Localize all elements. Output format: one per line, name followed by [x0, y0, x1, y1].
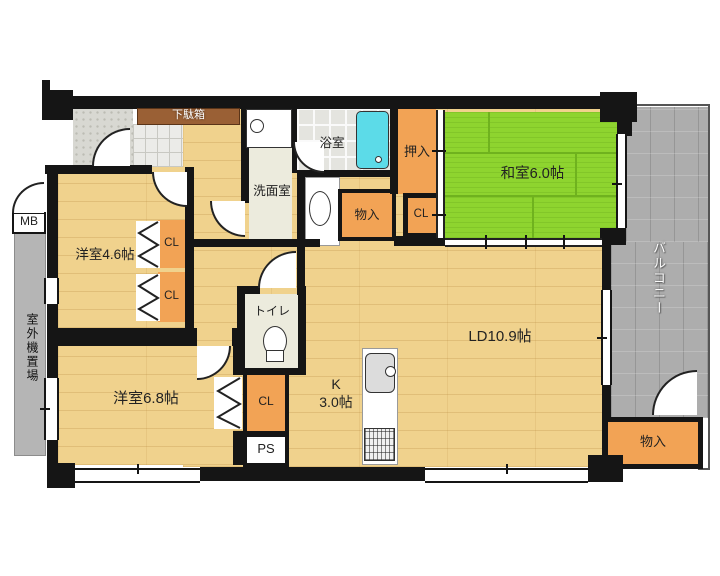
wall-block: [588, 455, 623, 482]
living-dining-label: LD10.9帖: [455, 328, 545, 345]
balcony-railing: [708, 104, 710, 470]
sliding-door-tick: [485, 235, 487, 249]
kitchen-label: K: [326, 376, 346, 392]
wall: [233, 346, 243, 375]
faucet-icon: [385, 366, 396, 377]
wall: [298, 286, 306, 375]
shoe-cabinet-label: 下駄箱: [137, 109, 240, 122]
wall-block: [600, 92, 637, 122]
meter-box-label: MB: [12, 215, 46, 229]
sliding-door-tick: [525, 235, 527, 249]
floorplan-canvas: バルコニー MB 室外機置場 下駄箱 押入 CL 物入 CL CL C: [0, 0, 720, 576]
bedroom-68-label: 洋室6.8帖: [96, 390, 196, 407]
window-tick: [137, 464, 139, 474]
wall: [47, 328, 197, 346]
window-tick: [612, 183, 622, 185]
closet-cl2-46-label: CL: [158, 290, 185, 303]
folding-door-icon: [136, 274, 160, 321]
tatami-line: [445, 195, 617, 197]
folding-door-icon: [214, 377, 242, 429]
bedroom-46-label: 洋室4.6帖: [58, 247, 152, 263]
wall: [297, 170, 397, 177]
wall: [45, 165, 152, 174]
bathtub-icon: [356, 111, 389, 169]
oshiire-label: 押入: [396, 145, 438, 160]
wall: [233, 431, 243, 465]
window-tick: [506, 464, 508, 474]
tatami-line: [532, 195, 534, 238]
fusuma-door-track: [436, 110, 445, 238]
genkan-tile: [133, 124, 183, 167]
closet-cl-68-label: CL: [243, 395, 289, 409]
wall: [602, 242, 611, 292]
toilet-tank-icon: [266, 350, 284, 362]
storage-monoiri-balcony-label: 物入: [603, 435, 703, 450]
wall-block: [42, 90, 73, 120]
closet-cl-oshiire-label: CL: [406, 208, 436, 221]
window: [44, 278, 59, 304]
closet-cl1-46-label: CL: [158, 237, 185, 250]
bath-label: 浴室: [310, 136, 354, 150]
tatami-line: [445, 152, 617, 154]
balcony-area-upper: [626, 107, 708, 242]
wall: [237, 368, 306, 375]
window-tick: [40, 408, 50, 410]
window: [616, 134, 627, 228]
wall: [200, 467, 425, 481]
stove-icon: [364, 428, 395, 461]
sliding-door-track: [445, 238, 602, 247]
balcony-label: バルコニー: [647, 238, 665, 318]
wall-block: [47, 463, 75, 488]
washroom-label: 洗面室: [245, 184, 299, 198]
pipe-space-label: PS: [243, 442, 289, 457]
balcony-railing-top: [630, 104, 710, 106]
toilet-label: トイレ: [250, 305, 294, 319]
tatami-line: [488, 112, 490, 152]
wall: [237, 286, 260, 294]
sliding-door-tick: [563, 235, 565, 249]
wall-block: [600, 228, 626, 245]
tatami-room-label: 和室6.0帖: [480, 166, 585, 183]
outdoor-unit-label: 室外機置場: [20, 308, 38, 388]
kitchen-size-label: 3.0帖: [314, 394, 358, 410]
storage-monoiri-center-label: 物入: [338, 208, 396, 222]
sink-basin-icon: [309, 191, 331, 226]
bathtub-drain-icon: [375, 156, 382, 163]
porch-door-swing-icon: [12, 182, 44, 213]
window-tick: [597, 337, 607, 339]
washing-machine-drain-icon: [250, 119, 264, 133]
wall: [292, 108, 297, 173]
